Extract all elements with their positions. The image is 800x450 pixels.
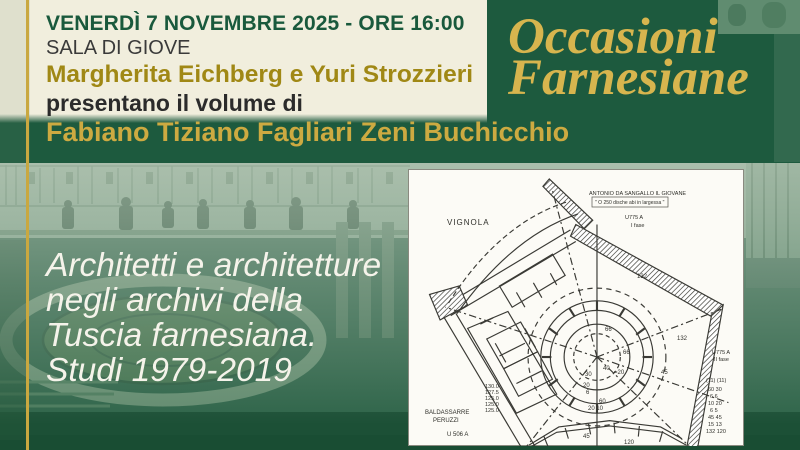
svg-text:U 506 A: U 506 A bbox=[447, 432, 468, 438]
svg-text:" O 250 dische abi in largessa: " O 250 dische abi in largessa " bbox=[595, 200, 665, 206]
svg-text:6: 6 bbox=[586, 390, 590, 396]
svg-text:60 30: 60 30 bbox=[708, 387, 722, 393]
svg-text:6 5: 6 5 bbox=[710, 408, 718, 414]
svg-text:(11) (11): (11) (11) bbox=[706, 378, 726, 384]
svg-text:132: 132 bbox=[637, 274, 648, 280]
svg-text:45: 45 bbox=[583, 434, 590, 440]
svg-text:132 120: 132 120 bbox=[706, 429, 726, 435]
svg-text:20 10: 20 10 bbox=[588, 406, 604, 412]
svg-text:45: 45 bbox=[661, 370, 668, 376]
svg-text:45 45: 45 45 bbox=[708, 415, 722, 421]
svg-text:ANTONIO DA SANGALLO IL GIOVANE: ANTONIO DA SANGALLO IL GIOVANE bbox=[589, 191, 686, 197]
svg-text:60: 60 bbox=[599, 399, 606, 405]
svg-text:15 13: 15 13 bbox=[708, 422, 722, 428]
svg-text:66: 66 bbox=[623, 350, 630, 356]
svg-text:=20: =20 bbox=[614, 370, 625, 376]
svg-text:66: 66 bbox=[605, 327, 612, 333]
svg-text:20: 20 bbox=[583, 383, 590, 389]
svg-text:10 20: 10 20 bbox=[708, 401, 722, 407]
svg-text:40: 40 bbox=[603, 366, 610, 372]
svg-text:132: 132 bbox=[677, 336, 688, 342]
svg-text:PERUZZI: PERUZZI bbox=[433, 418, 459, 424]
svg-text:6 6: 6 6 bbox=[710, 394, 718, 400]
svg-text:120: 120 bbox=[624, 440, 635, 446]
svg-text:U775 A: U775 A bbox=[712, 350, 730, 356]
svg-text:BALDASSARRE: BALDASSARRE bbox=[425, 410, 469, 416]
svg-text:125.0: 125.0 bbox=[485, 408, 499, 414]
svg-text:30: 30 bbox=[585, 372, 592, 378]
svg-text:I fase: I fase bbox=[631, 223, 644, 229]
svg-text:II fase: II fase bbox=[714, 357, 729, 363]
svg-text:U775 A: U775 A bbox=[625, 215, 643, 221]
svg-text:VIGNOLA: VIGNOLA bbox=[447, 218, 490, 227]
